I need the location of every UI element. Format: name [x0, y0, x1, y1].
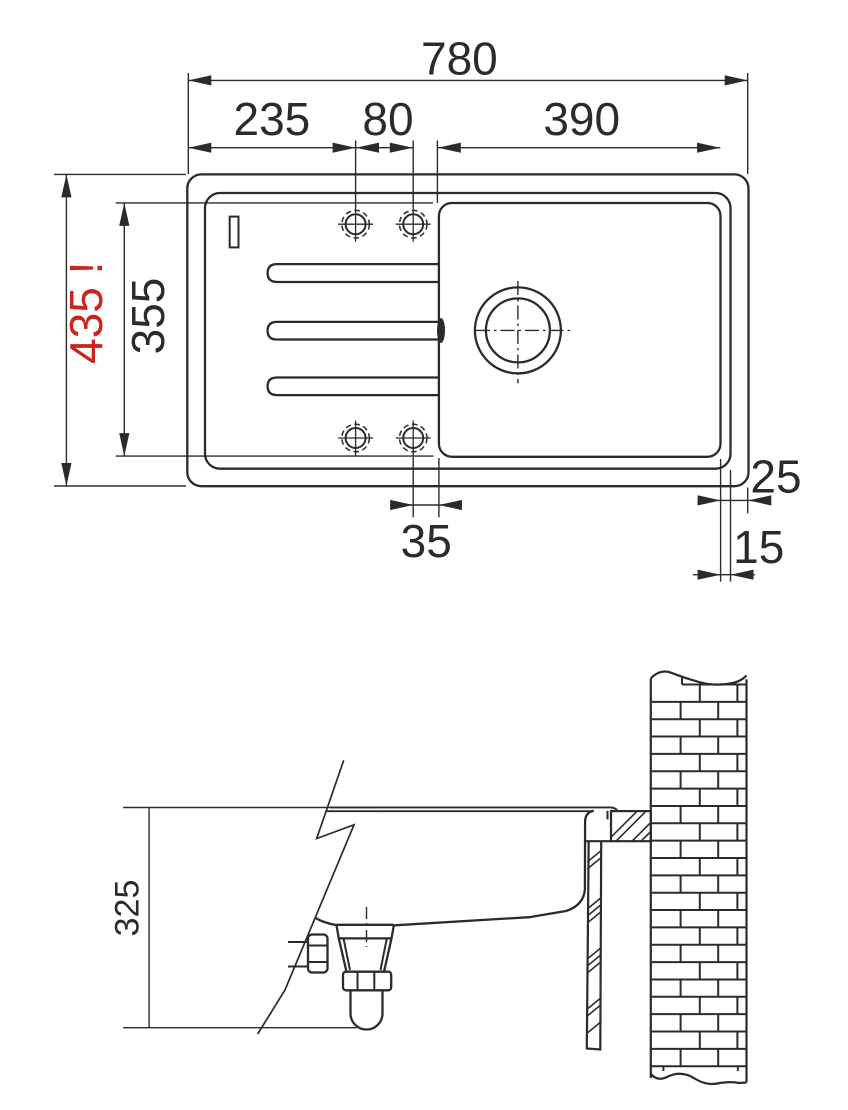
svg-text:25: 25: [750, 451, 801, 503]
svg-text:80: 80: [362, 93, 413, 145]
svg-text:355: 355: [122, 278, 174, 355]
svg-text:390: 390: [543, 93, 620, 145]
svg-text:325: 325: [109, 880, 147, 937]
svg-text:780: 780: [421, 33, 498, 85]
svg-text:15: 15: [733, 521, 784, 573]
svg-text:435 !: 435 !: [60, 262, 112, 364]
svg-text:235: 235: [234, 93, 311, 145]
svg-text:35: 35: [401, 515, 452, 567]
